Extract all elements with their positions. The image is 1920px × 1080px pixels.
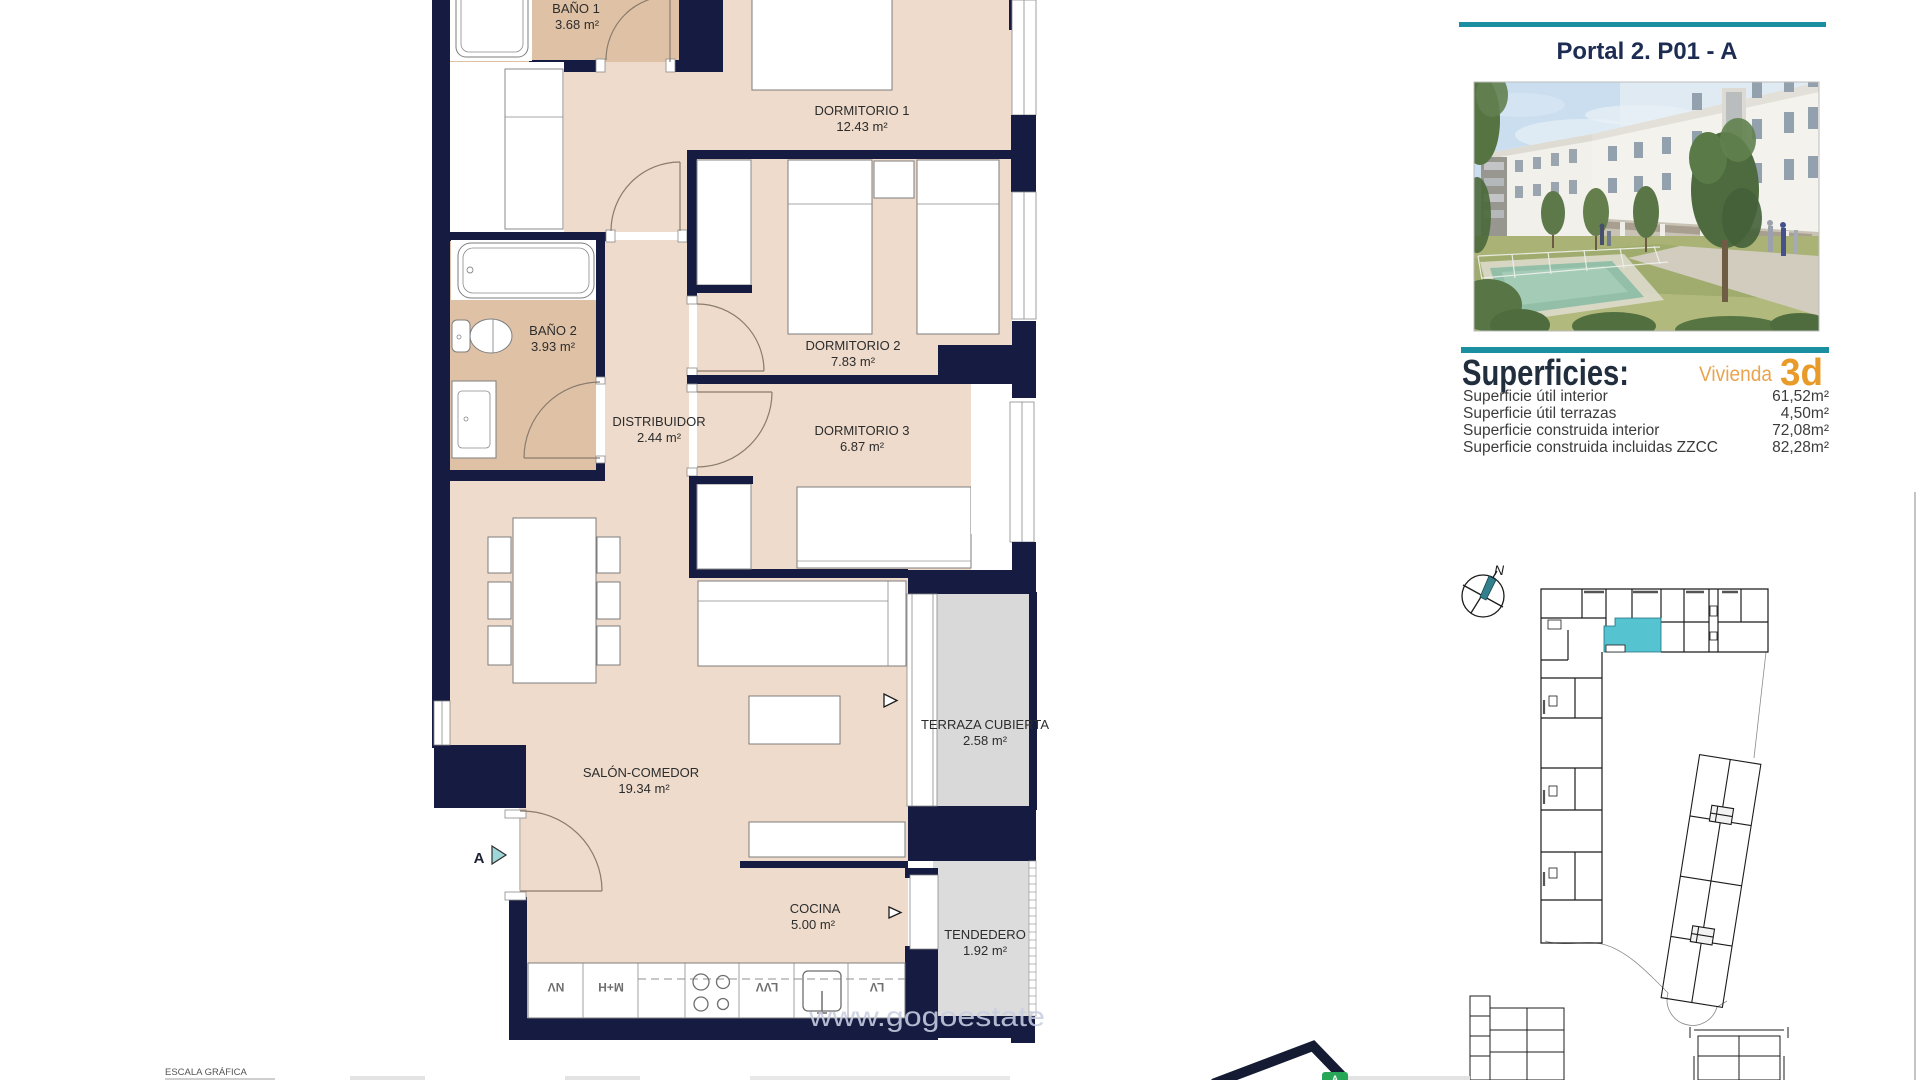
svg-text:2.44 m²: 2.44 m²	[637, 430, 682, 445]
svg-text:12.43 m²: 12.43 m²	[836, 119, 888, 134]
svg-text:M+H: M+H	[598, 980, 624, 994]
svg-text:COCINA: COCINA	[790, 901, 841, 916]
svg-text:NV: NV	[548, 980, 565, 994]
svg-text:TENDEDERO: TENDEDERO	[944, 927, 1026, 942]
svg-text:Superficie útil interior: Superficie útil interior	[1463, 388, 1608, 405]
svg-text:2.58 m²: 2.58 m²	[963, 733, 1008, 748]
svg-text:SALÓN-COMEDOR: SALÓN-COMEDOR	[583, 765, 699, 780]
svg-text:DISTRIBUIDOR: DISTRIBUIDOR	[612, 414, 705, 429]
svg-text:19.34 m²: 19.34 m²	[618, 781, 670, 796]
svg-text:5.00 m²: 5.00 m²	[791, 917, 836, 932]
svg-text:3.68 m²: 3.68 m²	[555, 17, 600, 32]
svg-text:82,28m²: 82,28m²	[1772, 439, 1829, 456]
svg-text:Portal 2. P01 - A: Portal 2. P01 - A	[1557, 38, 1738, 65]
svg-text:3.93 m²: 3.93 m²	[531, 339, 576, 354]
svg-text:4,50m²: 4,50m²	[1781, 405, 1829, 422]
svg-text:N: N	[1494, 562, 1505, 578]
svg-text:DORMITORIO 3: DORMITORIO 3	[814, 423, 909, 438]
svg-text:Superficie útil terrazas: Superficie útil terrazas	[1463, 405, 1617, 422]
svg-text:A: A	[474, 850, 485, 867]
svg-text:LV: LV	[870, 980, 884, 994]
svg-text:TERRAZA CUBIERTA: TERRAZA CUBIERTA	[921, 717, 1049, 732]
svg-text:Superficie construida interior: Superficie construida interior	[1463, 422, 1659, 439]
svg-text:6.87 m²: 6.87 m²	[840, 439, 885, 454]
svg-text:BAÑO 1: BAÑO 1	[552, 1, 600, 16]
svg-text:7.83 m²: 7.83 m²	[831, 354, 876, 369]
svg-text:61,52m²: 61,52m²	[1772, 388, 1829, 405]
svg-text:Superficies:: Superficies:	[1462, 352, 1629, 393]
svg-text:ESCALA GRÁFICA: ESCALA GRÁFICA	[165, 1067, 247, 1078]
svg-text:www.gogoestate: www.gogoestate	[808, 1001, 1045, 1032]
svg-text:DORMITORIO 1: DORMITORIO 1	[814, 103, 909, 118]
svg-text:72,08m²: 72,08m²	[1772, 422, 1829, 439]
svg-text:1.92 m²: 1.92 m²	[963, 943, 1008, 958]
svg-text:Superficie construida incluida: Superficie construida incluidas ZZCC	[1463, 439, 1718, 456]
svg-text:A: A	[1332, 1074, 1339, 1080]
svg-text:LVV: LVV	[756, 980, 778, 994]
svg-text:Vivienda: Vivienda	[1699, 363, 1772, 386]
svg-text:DORMITORIO 2: DORMITORIO 2	[805, 338, 900, 353]
svg-text:BAÑO 2: BAÑO 2	[529, 323, 577, 338]
